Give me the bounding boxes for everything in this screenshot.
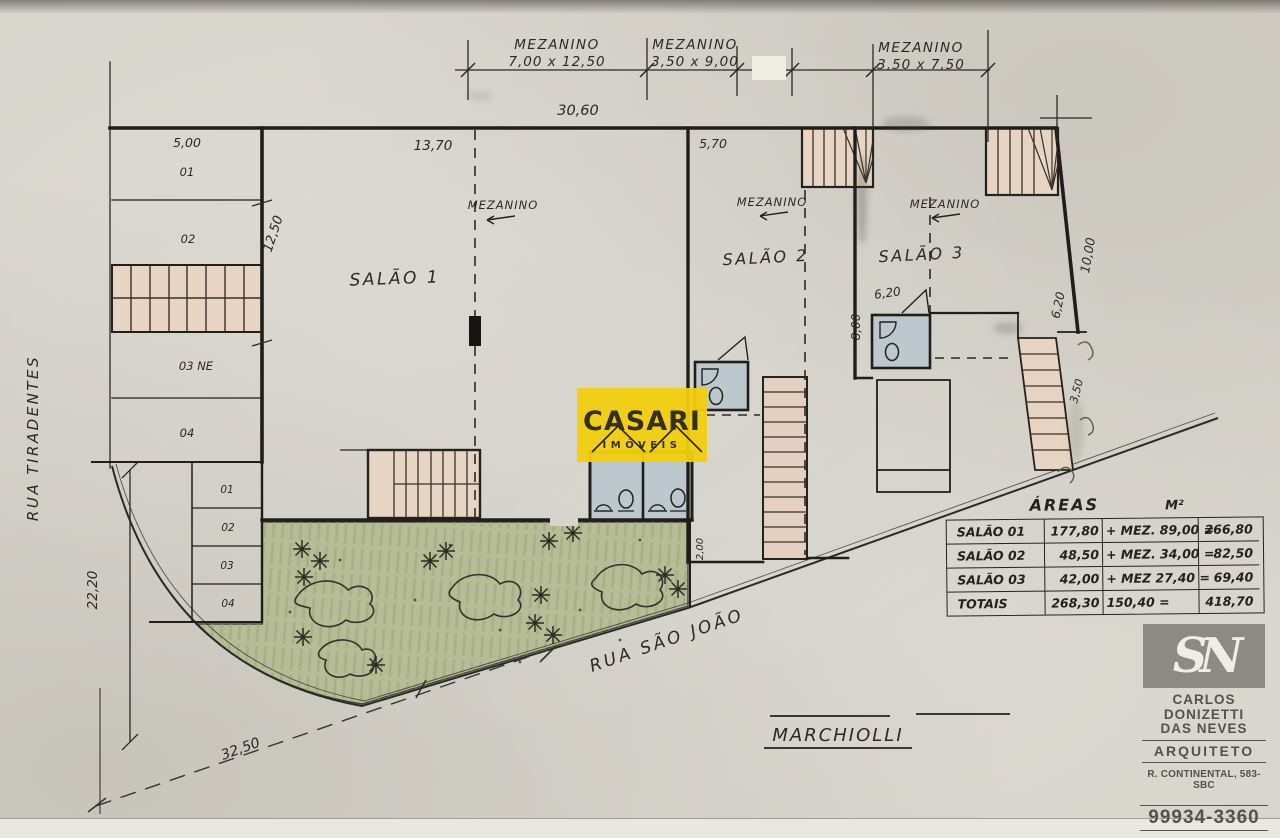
mezzanine-note-salao3: MEZANINO <box>910 197 981 211</box>
areas-table: ÁREAS M² SALÃO 01 177,80 + MEZ. 89,00 = … <box>945 484 1264 616</box>
table-row-label: SALÃO 03 <box>947 568 1045 593</box>
door-swing <box>902 290 929 313</box>
areas-grid: SALÃO 01 177,80 + MEZ. 89,00 = 266,80 SA… <box>946 516 1265 616</box>
structural-column <box>469 316 481 346</box>
table-row-mez: 150,40 = <box>1103 590 1199 614</box>
parking-lower-01: 01 <box>220 484 233 496</box>
stamp-divider <box>1142 740 1266 741</box>
architect-name-line1: CARLOS <box>1140 693 1268 708</box>
table-row-total: 69,40 <box>1199 565 1259 590</box>
architect-name-line3: DAS NEVES <box>1140 722 1268 737</box>
parking-upper-03: 03 NE <box>179 359 214 373</box>
dim-garden-edge: 2,00 <box>695 538 706 560</box>
mezzanine-dim-1-label: MEZANINO <box>514 37 599 53</box>
mezzanine-dim-3-size: 3,50 x 7,50 <box>877 57 965 73</box>
parking-upper-04: 04 <box>180 426 195 440</box>
stair-salao3-top <box>986 128 1058 195</box>
table-row-area: 268,30 <box>1045 591 1103 615</box>
table-row-label: SALÃO 02 <box>947 544 1045 569</box>
areas-table-title: ÁREAS <box>1029 495 1099 515</box>
room-label-salao3: SALÃO 3 <box>878 243 965 266</box>
stair-salao1 <box>340 450 480 518</box>
architect-name-line2: DONIZETTI <box>1140 708 1268 723</box>
dim-left-height: 12,50 <box>261 214 287 254</box>
stair-central <box>763 377 807 559</box>
table-row-area: 177,80 <box>1045 519 1103 544</box>
sn-monogram-text: SN <box>1173 628 1246 684</box>
dim-right-wall-a: 10,00 <box>1077 236 1098 274</box>
table-row-mez: + MEZ 27,40 = <box>1103 566 1199 591</box>
signature-block: MARCHIOLLI <box>764 714 1010 748</box>
parking-upper-02: 02 <box>181 232 196 246</box>
mezzanine-dim-2-size: 3,50 x 9,00 <box>651 54 739 70</box>
table-row-area: 48,50 <box>1045 543 1103 568</box>
architect-address: R. CONTINENTAL, 583-SBC <box>1140 769 1268 791</box>
door-opening <box>550 513 578 526</box>
dim-right-wall-b: 6,20 <box>1048 290 1067 319</box>
parking-upper-01: 01 <box>180 165 195 179</box>
dim-total-width: 30,60 <box>557 103 599 119</box>
mezzanine-dim-2-label: MEZANINO <box>652 37 737 53</box>
mezzanine-dim-1-size: 7,00 x 12,50 <box>508 54 605 70</box>
correction-tape <box>752 56 786 80</box>
blueprint-page: CASARI IMÓVEIS MEZANINO 7,00 x 12,50 MEZ… <box>0 0 1280 838</box>
mezzanine-note-arrows <box>487 212 960 224</box>
mezzanine-note-salao2: MEZANINO <box>737 195 808 209</box>
casari-logo-text: CASARI <box>583 406 701 437</box>
table-row-total: 266,80 <box>1199 517 1259 542</box>
areas-table-header: ÁREAS M² <box>945 484 1263 515</box>
architect-stamp: SN CARLOS DONIZETTI DAS NEVES ARQUITETO … <box>1140 624 1268 831</box>
dim-salao1-width: 13,70 <box>414 138 453 154</box>
casari-logo-subtitle: IMÓVEIS <box>603 438 682 451</box>
casari-watermark: CASARI IMÓVEIS <box>577 388 707 462</box>
architect-phone: 99934-3360 <box>1140 806 1268 830</box>
mezzanine-dim-3-label: MEZANINO <box>878 40 963 56</box>
parking-lower-04: 04 <box>221 598 234 610</box>
table-row-mez: + MEZ. 89,00 = <box>1103 518 1199 543</box>
table-row-label: SALÃO 01 <box>947 520 1045 545</box>
table-row-mez: + MEZ. 34,00 = <box>1103 542 1199 567</box>
bathroom-salao3 <box>872 290 930 368</box>
parking-lower-03: 03 <box>220 560 233 572</box>
signature-name: MARCHIOLLI <box>772 725 903 746</box>
architect-role: ARQUITETO <box>1140 743 1268 759</box>
table-row-total: 82,50 <box>1199 541 1259 566</box>
stair-upper-left-parking <box>112 265 262 332</box>
mezzanine-note-salao1: MEZANINO <box>468 198 539 212</box>
parking-lower-02: 02 <box>221 522 235 534</box>
dim-salao3-bath-height: 8,00 <box>849 313 863 340</box>
street-label-rua-tiradentes: RUA TIRADENTES <box>24 355 42 521</box>
phone-box: 99934-3360 <box>1140 805 1268 831</box>
labels: MEZANINO 7,00 x 12,50 MEZANINO 3,50 x 9,… <box>24 37 1098 764</box>
table-row-area: 42,00 <box>1045 567 1103 592</box>
dim-salao2-width: 5,70 <box>699 136 727 151</box>
table-row-label: TOTAIS <box>947 592 1045 616</box>
dim-diagonal: 32,50 <box>219 735 262 764</box>
floor-plan-canvas: CASARI IMÓVEIS MEZANINO 7,00 x 12,50 MEZ… <box>0 0 1280 838</box>
bathroom-block-central <box>590 452 692 520</box>
room-label-salao2: SALÃO 2 <box>722 246 809 269</box>
sn-monogram-icon: SN <box>1144 625 1264 687</box>
dim-left-top: 5,00 <box>173 135 201 150</box>
door-swing <box>718 337 748 360</box>
table-row-total: 418,70 <box>1199 589 1259 613</box>
dim-left-lower-height: 22,20 <box>85 571 101 610</box>
areas-table-unit: M² <box>1165 498 1184 513</box>
stamp-divider <box>1142 762 1266 763</box>
dim-ramp: 3,50 <box>1067 378 1086 405</box>
architect-logo: SN <box>1143 624 1265 688</box>
room-label-salao1: SALÃO 1 <box>349 265 440 290</box>
dim-salao3-bath-width: 6,20 <box>873 284 902 302</box>
